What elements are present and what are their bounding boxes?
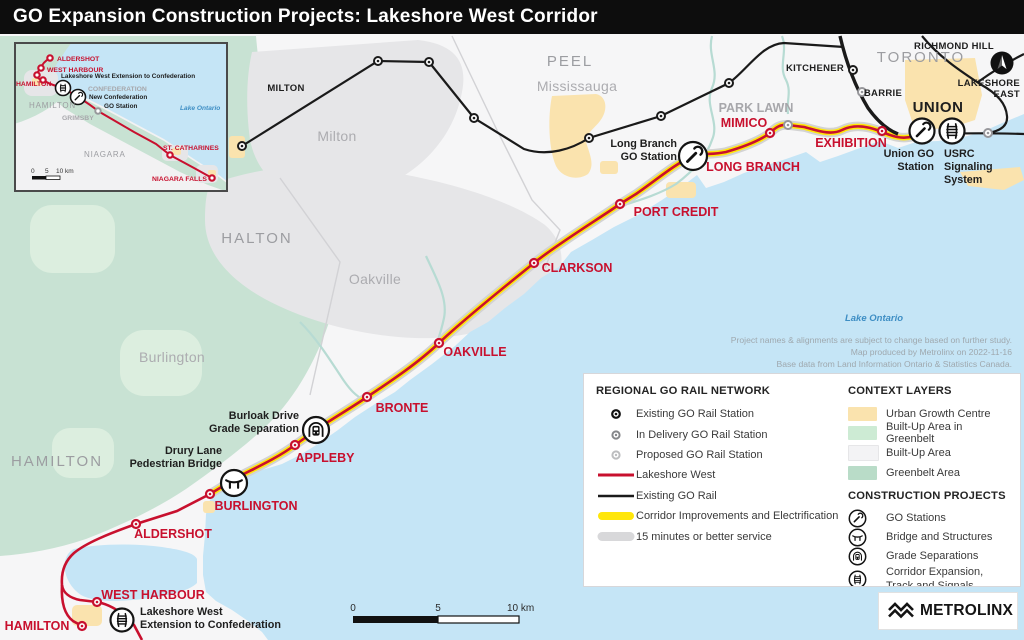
label-usrc-3: System xyxy=(944,174,982,186)
label-usrc-1: USRC xyxy=(944,148,975,160)
inset-track-signals-icon xyxy=(56,81,71,96)
inset-label-lake-ontario: Lake Ontario xyxy=(180,105,220,112)
map-note-2: Map produced by Metrolinx on 2022-11-16 xyxy=(851,347,1013,357)
label-station-exhibition: EXHIBITION xyxy=(815,136,887,150)
track-signals-icon xyxy=(940,119,965,144)
inset-map: ALDERSHOT WEST HARBOUR HAMILTON Lakeshor… xyxy=(14,42,228,192)
legend-item-label: Built-Up Area in Greenbelt xyxy=(886,421,1008,445)
legend-item: Built-Up Area xyxy=(848,443,1008,463)
legend-item-label: Proposed GO Rail Station xyxy=(636,449,763,461)
label-extension-2: Extension to Confederation xyxy=(140,619,281,631)
inset-label-st-catharines: ST. CATHARINES xyxy=(163,145,219,152)
greenbelt-swatch xyxy=(848,466,886,480)
label-station-burlington: BURLINGTON xyxy=(214,499,297,513)
label-line-richmond-hill: RICHMOND HILL xyxy=(914,41,994,52)
inset-label-new-confederation-2: GO Station xyxy=(104,103,137,110)
map-note-3: Base data from Land Information Ontario … xyxy=(777,359,1013,369)
label-extension-1: Lakeshore West xyxy=(140,606,223,618)
legend-item: GO Stations xyxy=(848,509,1008,528)
label-city-oakville: Oakville xyxy=(349,271,401,287)
label-union: UNION xyxy=(913,99,964,116)
label-station-oakville: OAKVILLE xyxy=(443,345,506,359)
label-station-long-branch: LONG BRANCH xyxy=(706,160,800,174)
proposed-station-icon xyxy=(596,448,636,462)
electrification-swatch xyxy=(596,510,636,522)
inset-label-aldershot: ALDERSHOT xyxy=(57,56,100,63)
inset-label-hamilton-region: HAMILTON xyxy=(29,101,76,110)
track-signals-icon xyxy=(111,609,134,632)
legend-item: Greenbelt Area xyxy=(848,463,1008,483)
legend-item-label: Corridor Improvements and Electrificatio… xyxy=(636,510,838,522)
go-station-icon xyxy=(848,509,886,528)
north-arrow-icon xyxy=(991,52,1014,75)
inset-label-grimsby: GRIMSBY xyxy=(62,115,94,122)
label-long-branch-go-2: GO Station xyxy=(621,151,677,163)
label-station-mimico: MIMICO xyxy=(721,116,768,130)
inset-scale-10: 10 km xyxy=(56,168,74,175)
map-screenshot: GO Expansion Construction Projects: Lake… xyxy=(0,0,1024,640)
legend-item: Proposed GO Rail Station xyxy=(596,445,848,465)
legend-item: Corridor Improvements and Electrificatio… xyxy=(596,506,848,526)
label-usrc-2: Signaling xyxy=(944,161,993,173)
inset-scale-5: 5 xyxy=(45,168,49,175)
label-line-barrie: BARRIE xyxy=(864,88,902,99)
metrolinx-logo: METROLINX xyxy=(878,592,1018,630)
go-station-icon xyxy=(910,119,935,144)
existing-rail-line-swatch xyxy=(596,492,636,500)
inset-label-niagara: NIAGARA xyxy=(84,150,126,159)
label-region-peel: PEEL xyxy=(547,53,593,70)
legend-item: Built-Up Area in Greenbelt xyxy=(848,424,1008,444)
label-burloak-2: Grade Separation xyxy=(209,423,299,435)
legend-item-label: GO Stations xyxy=(886,512,946,525)
inset-scale-0: 0 xyxy=(31,168,35,175)
legend-item: Existing GO Rail Station xyxy=(596,404,848,424)
legend-item-label: Existing GO Rail xyxy=(636,490,717,502)
legend-item: 15 minutes or better service xyxy=(596,526,848,546)
legend-context-title: CONTEXT LAYERS xyxy=(848,385,1008,397)
label-station-aldershot: ALDERSHOT xyxy=(134,527,212,541)
map-note-1: Project names & alignments are subject t… xyxy=(731,335,1012,345)
label-line-kitchener: KITCHENER xyxy=(786,63,844,74)
urban-growth-swatch xyxy=(848,407,886,421)
legend-item-label: Greenbelt Area xyxy=(886,467,960,479)
scale-10km: 10 km xyxy=(507,603,534,614)
label-station-appleby: APPLEBY xyxy=(295,451,355,465)
label-city-mississauga: Mississauga xyxy=(537,78,617,94)
scale-5: 5 xyxy=(435,603,441,614)
legend-item-label: 15 minutes or better service xyxy=(636,531,772,543)
bridge-icon xyxy=(221,470,247,496)
inset-label-new-confederation: New Confederation xyxy=(89,94,147,101)
scale-0: 0 xyxy=(350,603,356,614)
label-drury-1: Drury Lane xyxy=(165,445,222,457)
existing-station-icon xyxy=(596,407,636,421)
label-station-bronte: BRONTE xyxy=(376,401,429,415)
legend-network-title: REGIONAL GO RAIL NETWORK xyxy=(596,385,848,397)
page-title: GO Expansion Construction Projects: Lake… xyxy=(0,0,1024,34)
label-burloak-1: Burloak Drive xyxy=(229,410,299,422)
label-line-milton: MILTON xyxy=(267,83,304,94)
label-city-burlington: Burlington xyxy=(139,349,205,365)
label-drury-2: Pedestrian Bridge xyxy=(130,458,222,470)
label-union-go-1: Union GO xyxy=(884,148,934,160)
legend-item: Bridge and Structures xyxy=(848,528,1008,547)
legend-item-label: Existing GO Rail Station xyxy=(636,408,754,420)
fifteen-min-service-swatch xyxy=(596,530,636,543)
inset-label-extension: Lakeshore West Extension to Confederatio… xyxy=(61,73,195,80)
label-union-go-2: Station xyxy=(897,161,934,173)
label-station-port-credit: PORT CREDIT xyxy=(634,205,719,219)
legend-item-label: Lakeshore West xyxy=(636,469,715,481)
label-region-hamilton: HAMILTON xyxy=(11,453,103,470)
legend-item: In Delivery GO Rail Station xyxy=(596,424,848,444)
label-station-clarkson: CLARKSON xyxy=(542,261,613,275)
label-city-milton: Milton xyxy=(317,128,356,144)
legend-item-label: Corridor Expansion, Track and Signals xyxy=(886,566,1008,587)
legend-item: Grade Separations xyxy=(848,547,1008,566)
grade-separation-icon xyxy=(303,417,329,443)
legend-item-label: Urban Growth Centre xyxy=(886,408,991,420)
metrolinx-logo-text: METROLINX xyxy=(920,602,1013,620)
label-station-hamilton: HAMILTON xyxy=(5,619,70,633)
legend-item: Lakeshore West xyxy=(596,465,848,485)
inset-label-confederation: CONFEDERATION xyxy=(88,86,147,93)
label-line-lakeshore-east-2: EAST xyxy=(993,89,1020,100)
grade-separation-icon xyxy=(848,547,886,566)
inset-label-niagara-falls: NIAGARA FALLS xyxy=(152,176,207,183)
label-line-lakeshore-east: LAKESHORE xyxy=(958,78,1020,89)
legend-context-column: CONTEXT LAYERS Urban Growth Centre Built… xyxy=(848,385,1008,575)
legend-network-column: REGIONAL GO RAIL NETWORK Existing GO Rai… xyxy=(596,385,848,575)
legend-item-label: Built-Up Area xyxy=(886,447,951,459)
label-region-halton: HALTON xyxy=(221,230,292,247)
legend-projects-title: CONSTRUCTION PROJECTS xyxy=(848,490,1008,502)
label-station-west-harbour: WEST HARBOUR xyxy=(101,588,204,602)
builtup-swatch xyxy=(848,445,886,461)
lakeshore-west-line-swatch xyxy=(596,471,636,479)
label-long-branch-go-1: Long Branch xyxy=(610,138,677,150)
legend-box: REGIONAL GO RAIL NETWORK Existing GO Rai… xyxy=(583,373,1021,587)
legend-item-label: Grade Separations xyxy=(886,550,978,563)
metrolinx-logo-icon xyxy=(887,601,915,621)
go-station-icon xyxy=(679,142,707,170)
bridge-icon xyxy=(848,528,886,547)
builtup-greenbelt-swatch xyxy=(848,426,886,440)
legend-item: Existing GO Rail xyxy=(596,486,848,506)
legend-item: Corridor Expansion, Track and Signals xyxy=(848,566,1008,587)
label-lake-ontario: Lake Ontario xyxy=(845,313,903,324)
inset-label-hamilton: HAMILTON xyxy=(16,81,51,88)
label-station-park-lawn: PARK LAWN xyxy=(719,101,794,115)
legend-item-label: In Delivery GO Rail Station xyxy=(636,429,767,441)
track-signals-icon xyxy=(848,570,886,587)
legend-item-label: Bridge and Structures xyxy=(886,531,992,544)
in-delivery-station-icon xyxy=(596,428,636,442)
